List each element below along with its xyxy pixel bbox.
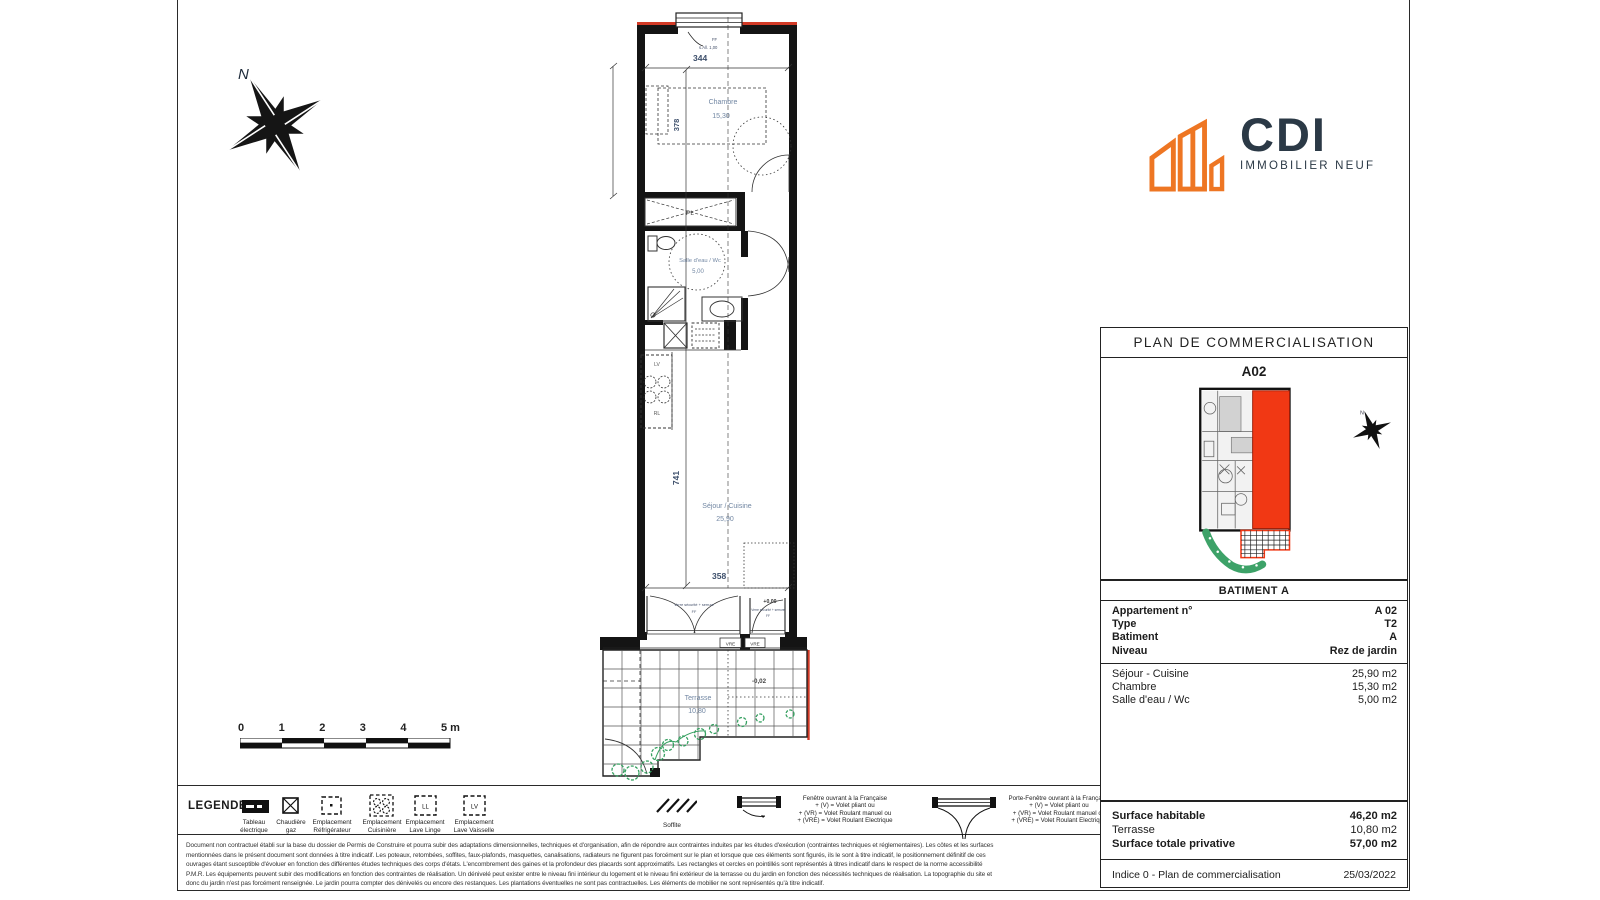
cdi-logo: CDI IMMOBILIER NEUF <box>1143 113 1413 193</box>
bathroom-area: 5,00 <box>692 269 704 275</box>
top-window <box>676 13 742 46</box>
soffit-label: Soffite <box>643 822 701 830</box>
bathroom-fixtures <box>648 231 789 321</box>
level-interior: +0,00 <box>763 599 776 605</box>
legend: LEGENDE: LL LV Tableauél <box>177 785 1100 835</box>
dishwasher-slot-icon: LV <box>463 795 486 816</box>
key-plan-compass-icon: N <box>1349 407 1395 453</box>
unit-boundary-red <box>637 24 809 741</box>
scale-tick: 1 <box>279 722 285 734</box>
scale-end-label: 5 m <box>441 722 460 734</box>
dim-chambre: 378 <box>672 119 681 132</box>
soffit-icon <box>655 797 697 814</box>
window-sill-note: s.All. 1,00 <box>699 45 718 50</box>
scale-tick: 0 <box>238 722 244 734</box>
chambre-label: Chambre <box>709 99 738 106</box>
window-symbol-icon <box>735 794 783 824</box>
key-plan: N <box>1101 379 1407 579</box>
bathroom-label: Salle d'eau / Wc <box>679 258 721 264</box>
disclaimer-text: Document non contractuel établi sur la b… <box>186 841 1098 889</box>
door-window-symbol-icon <box>929 795 999 841</box>
gas-boiler-icon <box>282 797 299 814</box>
revision-label: Indice 0 - Plan de commercialisation <box>1112 869 1281 881</box>
fridge-slot-icon <box>321 796 342 815</box>
svg-text:LL: LL <box>422 805 429 811</box>
glass-note-right: Verre sécurité + serrure <box>751 608 785 612</box>
electrical-panel-icon <box>242 800 269 813</box>
key-plan-drawing <box>1161 383 1321 577</box>
room-areas-section: Séjour - Cuisine25,90 m2 Chambre15,30 m2… <box>1101 664 1407 714</box>
scale-tick: 4 <box>400 722 406 734</box>
building-header: BATIMENT A <box>1101 579 1407 601</box>
cdi-logo-tagline: IMMOBILIER NEUF <box>1240 160 1375 172</box>
scale-tick: 2 <box>319 722 325 734</box>
pmr-dotted-rect <box>744 543 794 588</box>
dim-top: 344 <box>693 53 707 63</box>
legend-item-label: EmplacementLave Vaisselle <box>445 819 503 834</box>
compass-north-label: N <box>238 66 249 83</box>
scale-bar-graphic <box>240 738 452 750</box>
closet-label: PL <box>686 210 694 217</box>
level-terrace: -0,02 <box>752 678 767 685</box>
window-head-note: FF <box>712 37 718 42</box>
vre-left: VRE <box>726 642 735 647</box>
scale-tick: 3 <box>360 722 366 734</box>
window-legend-note: Fenêtre ouvrant à la Française + (V) = V… <box>785 795 905 825</box>
revision-date: 25/03/2022 <box>1343 869 1396 881</box>
cooker-slot-icon <box>369 794 394 817</box>
fridge-label: RL <box>654 411 661 417</box>
living-area: 25,90 <box>716 516 734 523</box>
apartment-walls <box>600 25 807 650</box>
scale-bar: 0 1 2 3 4 5 m <box>238 722 460 756</box>
dim-sejour: 741 <box>671 471 681 485</box>
identity-section: Appartement n°A 02 TypeT2 BatimentA Nive… <box>1101 601 1407 663</box>
vre-right: VRE <box>750 642 759 647</box>
washer-slot-icon: LL <box>414 795 437 816</box>
panel-footer: Indice 0 - Plan de commercialisation 25/… <box>1101 860 1407 881</box>
svg-text:N: N <box>1360 411 1364 417</box>
chambre-area: 15,30 <box>712 113 730 120</box>
plan-sheet: N CDI IMMOBILIER NEUF <box>0 0 1600 900</box>
cdi-logo-text: CDI <box>1240 113 1375 157</box>
panel-title: PLAN DE COMMERCIALISATION <box>1101 328 1407 358</box>
glass-note-left: Verre sécurité + serrure <box>674 603 714 607</box>
ff-left: FF <box>692 610 697 614</box>
ff-right: FF <box>766 614 770 618</box>
dishwasher-label: LV <box>654 362 660 368</box>
dim-bottom: 358 <box>712 571 726 581</box>
cdi-logo-icon <box>1143 117 1231 193</box>
terrace-label: Terrasse <box>685 695 712 702</box>
surface-summary-section: Surface habitable46,20 m2 Terrasse10,80 … <box>1101 802 1407 859</box>
living-label: Séjour / Cuisine <box>702 503 752 510</box>
terrace-area: 10,80 <box>688 708 706 715</box>
svg-text:LV: LV <box>471 805 478 811</box>
title-block-panel: PLAN DE COMMERCIALISATION A02 <box>1100 327 1408 888</box>
floorplan-drawing: FF s.All. 1,00 344 358 378 741 Chambre 1… <box>580 0 820 790</box>
compass-rose: N <box>205 55 345 195</box>
panel-unit-label: A02 <box>1101 358 1407 379</box>
